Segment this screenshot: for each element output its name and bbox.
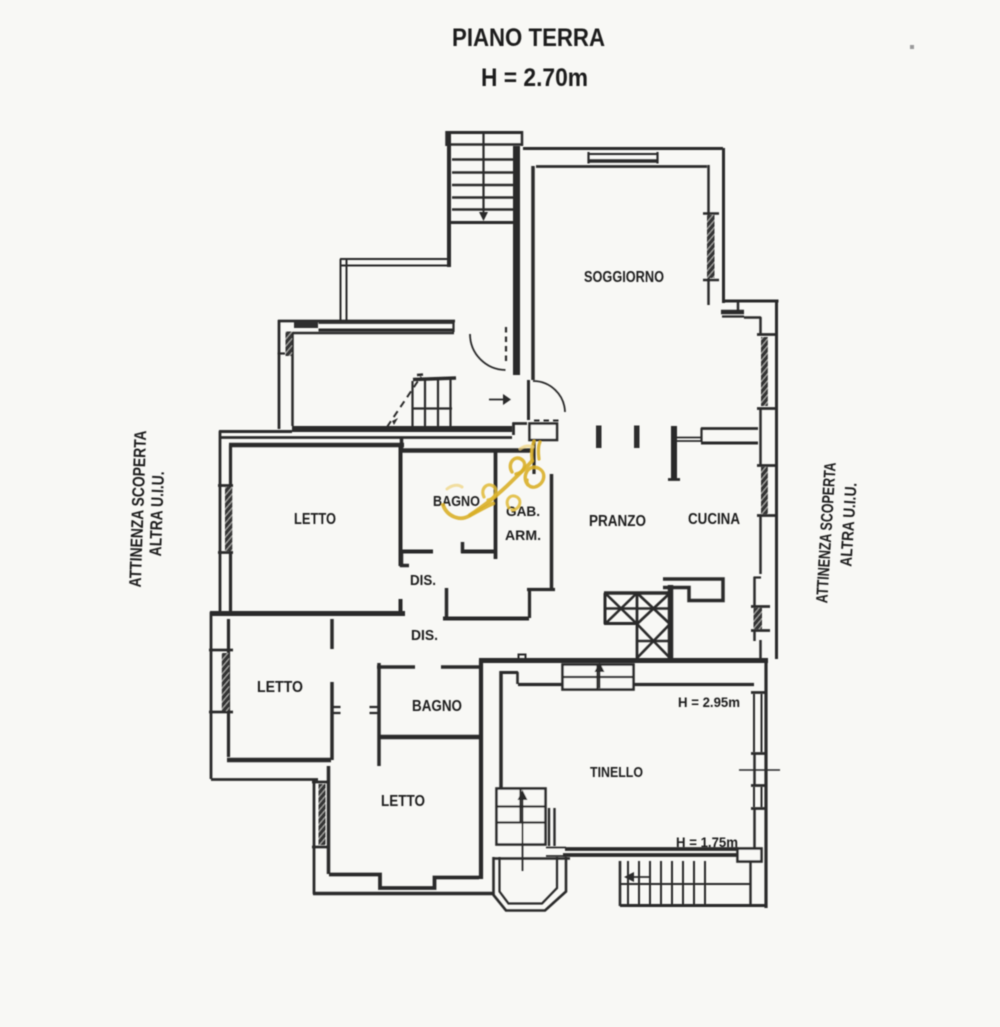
svg-text:DIS.: DIS. <box>410 572 436 589</box>
svg-text:H = 2.95m: H = 2.95m <box>678 694 740 710</box>
svg-text:ALTRA U.I.U.: ALTRA U.I.U. <box>837 482 860 567</box>
svg-text:TINELLO: TINELLO <box>590 764 643 781</box>
svg-text:BAGNO: BAGNO <box>433 493 480 510</box>
svg-text:LETTO: LETTO <box>294 511 336 528</box>
svg-text:CUCINA: CUCINA <box>688 511 740 528</box>
svg-text:ATTINENZA SCOPERTA: ATTINENZA SCOPERTA <box>813 462 840 604</box>
svg-text:SOGGIORNO: SOGGIORNO <box>584 269 664 286</box>
svg-text:ALTRA U.I.U.: ALTRA U.I.U. <box>146 471 168 557</box>
svg-text:ARM.: ARM. <box>505 527 541 543</box>
svg-text:LETTO: LETTO <box>257 679 303 696</box>
svg-text:DIS.: DIS. <box>411 627 438 644</box>
svg-text:H = 2.70m: H = 2.70m <box>481 64 588 92</box>
svg-text:LETTO: LETTO <box>381 793 425 810</box>
svg-text:BAGNO: BAGNO <box>412 698 462 715</box>
svg-text:PIANO TERRA: PIANO TERRA <box>452 24 605 52</box>
svg-text:PRANZO: PRANZO <box>589 513 646 530</box>
svg-text:ATTINENZA SCOPERTA: ATTINENZA SCOPERTA <box>126 430 150 588</box>
